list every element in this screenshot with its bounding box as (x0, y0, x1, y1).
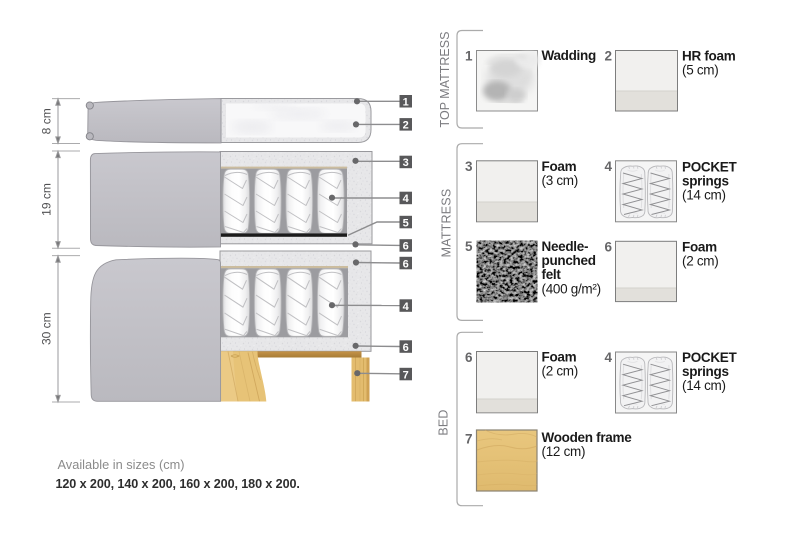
svg-text:6: 6 (403, 258, 409, 270)
svg-text:6: 6 (465, 350, 473, 365)
svg-text:1: 1 (465, 49, 473, 64)
svg-text:felt: felt (542, 267, 562, 282)
svg-text:Foam: Foam (682, 240, 717, 255)
svg-text:4: 4 (403, 193, 410, 205)
svg-text:Wadding: Wadding (542, 48, 596, 63)
svg-text:19 cm: 19 cm (39, 183, 53, 216)
svg-text:(3 cm): (3 cm) (542, 173, 578, 188)
svg-text:6: 6 (604, 240, 612, 255)
svg-text:3: 3 (465, 159, 473, 174)
svg-text:springs: springs (682, 364, 729, 379)
svg-text:2: 2 (403, 120, 409, 132)
svg-text:4: 4 (604, 350, 612, 365)
svg-text:(14 cm): (14 cm) (682, 378, 726, 393)
svg-text:MATTRESS: MATTRESS (439, 189, 453, 258)
svg-text:5: 5 (403, 217, 409, 229)
svg-text:30 cm: 30 cm (39, 312, 53, 345)
svg-text:7: 7 (465, 432, 473, 447)
svg-text:Foam: Foam (542, 159, 577, 174)
svg-text:5: 5 (465, 239, 473, 254)
svg-text:2: 2 (604, 49, 612, 64)
svg-text:(2 cm): (2 cm) (542, 364, 578, 379)
svg-text:8 cm: 8 cm (39, 108, 53, 134)
svg-text:HR foam: HR foam (682, 49, 736, 64)
svg-text:springs: springs (682, 174, 729, 189)
svg-text:3: 3 (403, 157, 409, 169)
svg-text:4: 4 (403, 301, 410, 313)
svg-text:(12 cm): (12 cm) (542, 444, 586, 459)
svg-text:BED: BED (436, 409, 450, 435)
svg-text:(400 g/m²): (400 g/m²) (542, 281, 601, 296)
svg-text:6: 6 (403, 342, 409, 354)
svg-text:POCKET: POCKET (682, 159, 738, 174)
svg-text:punched: punched (542, 253, 596, 268)
svg-text:TOP MATTRESS: TOP MATTRESS (438, 32, 452, 128)
svg-text:(14 cm): (14 cm) (682, 188, 726, 203)
svg-text:Foam: Foam (542, 350, 577, 365)
svg-text:4: 4 (604, 159, 612, 174)
svg-text:(5 cm): (5 cm) (682, 63, 718, 78)
svg-text:6: 6 (403, 241, 409, 253)
svg-text:Needle-: Needle- (542, 239, 589, 254)
svg-text:1: 1 (403, 97, 409, 109)
svg-text:120 x 200, 140 x 200, 160 x 20: 120 x 200, 140 x 200, 160 x 200, 180 x 2… (56, 477, 300, 491)
svg-text:POCKET: POCKET (682, 350, 738, 365)
svg-text:(2 cm): (2 cm) (682, 254, 718, 269)
svg-text:Wooden frame: Wooden frame (542, 430, 633, 445)
svg-text:7: 7 (403, 369, 409, 381)
svg-text:Available in sizes (cm): Available in sizes (cm) (58, 457, 185, 472)
